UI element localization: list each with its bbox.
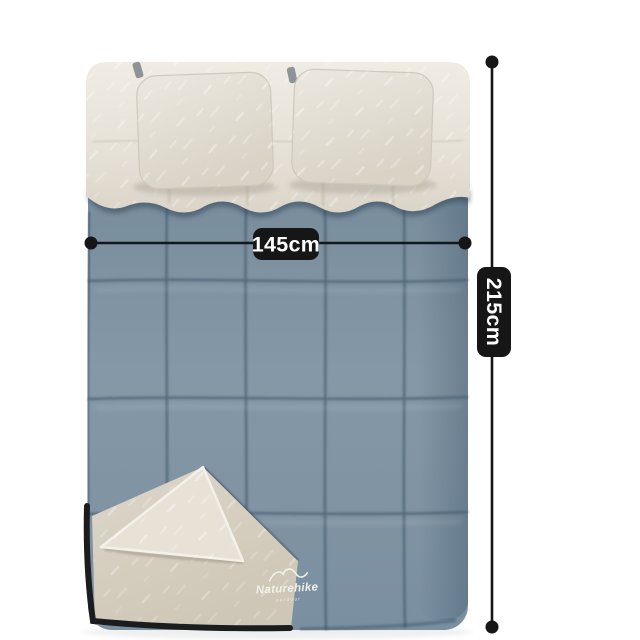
- width-endpoint-dot-left: [85, 237, 98, 250]
- quilt-seam: [404, 207, 405, 627]
- product-dimension-image: Naturehike outdoor 145cm 215cm: [0, 0, 640, 640]
- width-label: 145cm: [252, 233, 320, 257]
- sleeping-bag-illustration: Naturehike outdoor 145cm 215cm: [0, 0, 640, 640]
- height-label: 215cm: [482, 278, 506, 346]
- pillow-left: [136, 72, 274, 190]
- width-endpoint-dot-right: [459, 237, 472, 250]
- height-dimension-annotation: 215cm: [477, 56, 511, 634]
- height-endpoint-dot-bottom: [486, 621, 499, 634]
- quilt-seam: [325, 206, 326, 629]
- sleeping-bag: Naturehike outdoor: [86, 61, 470, 630]
- height-endpoint-dot-top: [486, 56, 499, 69]
- quilt-seam: [89, 397, 467, 399]
- pillow-right: [291, 69, 434, 187]
